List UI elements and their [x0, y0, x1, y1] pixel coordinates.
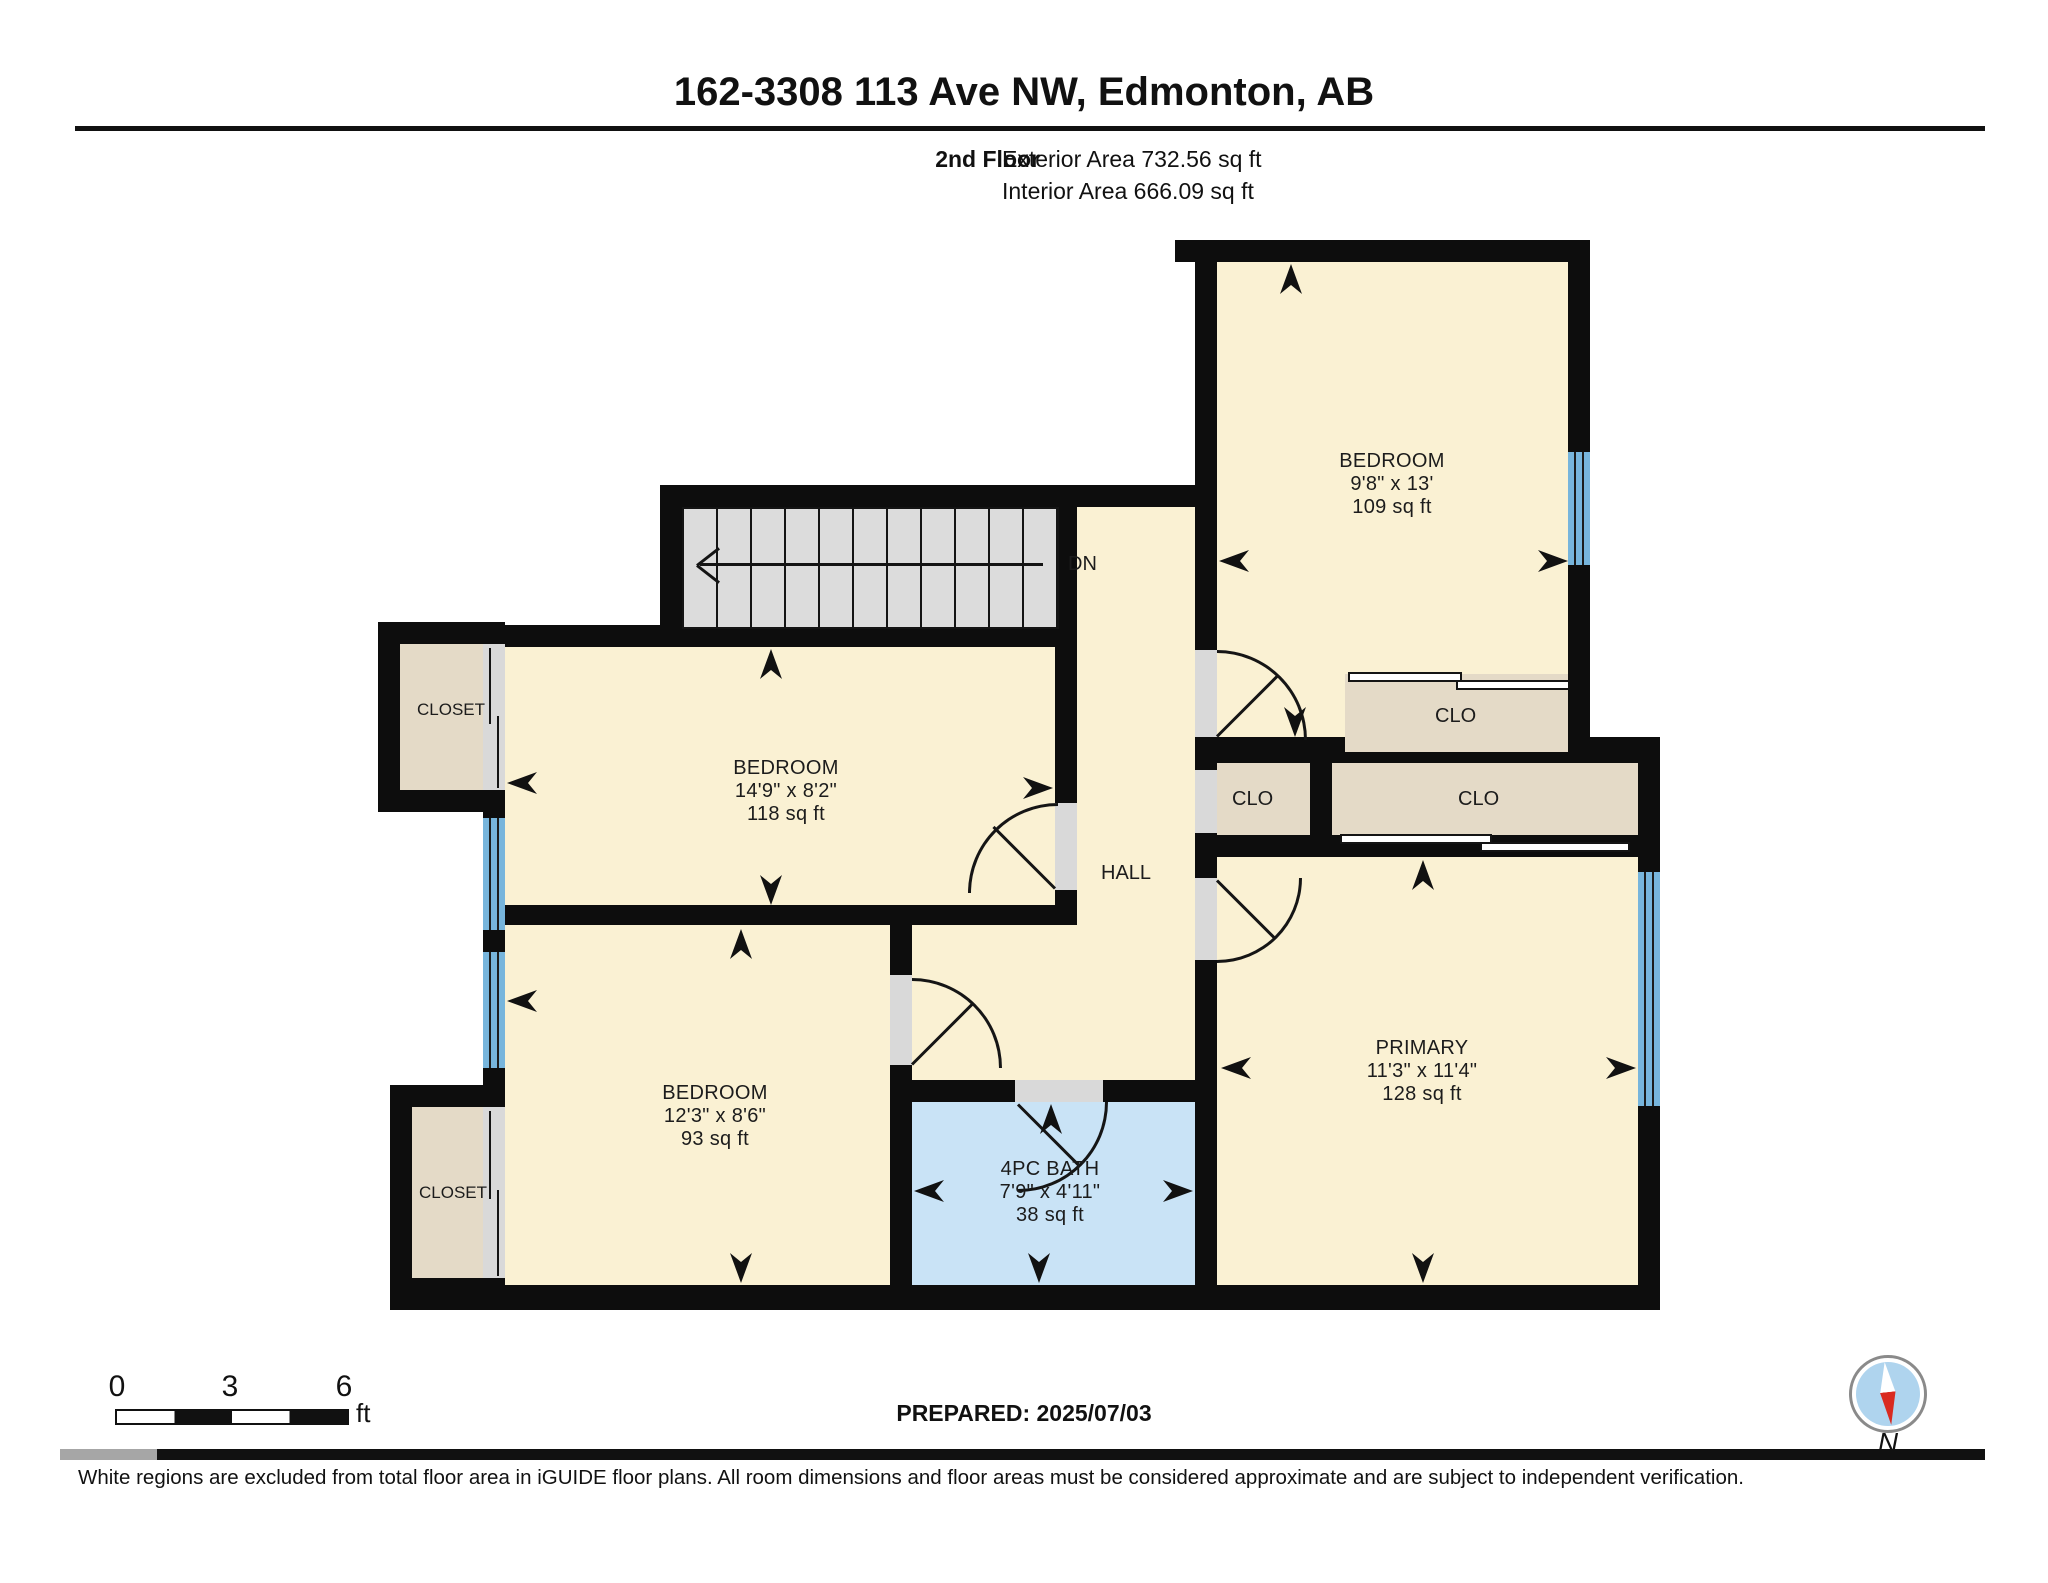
scale-tick-3: 3	[218, 1370, 242, 1404]
wall-segment	[1195, 240, 1217, 485]
room-label-primary: PRIMARY 11'3" x 11'4" 128 sq ft	[1322, 1037, 1522, 1106]
wall-segment	[1310, 763, 1332, 835]
sliding-door-panel	[489, 1111, 491, 1199]
exterior-area-text: Exterior Area 732.56 sq ft	[1002, 146, 1262, 173]
room-dims: 11'3" x 11'4"	[1367, 1060, 1478, 1083]
window	[483, 952, 505, 1068]
room-name: BEDROOM	[662, 1082, 767, 1105]
page-title: 162-3308 113 Ave NW, Edmonton, AB	[0, 70, 2048, 115]
compass-needle-north	[1875, 1391, 1904, 1427]
room-dims: 9'8" x 13'	[1350, 473, 1433, 496]
scale-tick-6: 6	[332, 1370, 356, 1404]
room-dims: 12'3" x 8'6"	[664, 1105, 766, 1128]
window	[483, 818, 505, 930]
compass: N	[1849, 1355, 1927, 1433]
door-opening	[890, 975, 912, 1065]
room-label-clo-hall: CLO	[1232, 788, 1273, 811]
door-opening	[1015, 1080, 1103, 1102]
room-label-closet-left-top: CLOSET	[417, 700, 485, 720]
footer-rule	[157, 1449, 1985, 1460]
bypass-door-panel	[1348, 672, 1462, 682]
door-opening	[1055, 803, 1077, 890]
footer-rule-gray	[60, 1449, 157, 1460]
sliding-door-track	[483, 644, 505, 790]
wall-segment	[390, 1285, 1660, 1310]
room-label-clo-primary: CLO	[1458, 788, 1499, 811]
bypass-door-panel	[1340, 834, 1492, 844]
window	[1568, 452, 1590, 565]
room-label-bedroom-mid: BEDROOM 14'9" x 8'2" 118 sq ft	[686, 757, 886, 826]
room-name: BEDROOM	[1339, 450, 1444, 473]
room-name: BEDROOM	[733, 757, 838, 780]
wall-segment	[1175, 240, 1590, 262]
room-dims: 14'9" x 8'2"	[735, 780, 837, 803]
title-divider-rule	[75, 126, 1985, 131]
room-label-bedroom-bot: BEDROOM 12'3" x 8'6" 93 sq ft	[615, 1082, 815, 1151]
door-opening	[1195, 878, 1217, 960]
scale-tick-0: 0	[105, 1370, 129, 1404]
bypass-door-panel	[1480, 842, 1630, 852]
room-area: 93 sq ft	[681, 1128, 749, 1151]
floor-plan-page: 162-3308 113 Ave NW, Edmonton, AB 2nd Fl…	[0, 0, 2048, 1583]
bypass-door-panel	[1456, 680, 1570, 690]
door-opening	[1195, 650, 1217, 737]
wall-segment	[660, 485, 682, 647]
room-label-closet-left-bot: CLOSET	[419, 1183, 487, 1203]
wall-segment	[660, 485, 1217, 507]
room-area: 109 sq ft	[1352, 496, 1431, 519]
footer-disclaimer: White regions are excluded from total fl…	[78, 1466, 1998, 1490]
room-label-clo-bedroom-top: CLO	[1435, 705, 1476, 728]
window	[1638, 872, 1660, 1106]
compass-needle-south	[1872, 1361, 1901, 1395]
room-label-bath: 4PC BATH 7'9" x 4'11" 38 sq ft	[950, 1158, 1150, 1227]
sliding-door-panel	[497, 1190, 499, 1276]
room-name: 4PC BATH	[1001, 1158, 1100, 1181]
compass-needle	[1845, 1351, 1931, 1437]
room-label-bedroom-top: BEDROOM 9'8" x 13' 109 sq ft	[1292, 450, 1492, 519]
sliding-door-panel	[489, 648, 491, 724]
stairs-dn-label: DN	[1068, 553, 1097, 576]
interior-area-text: Interior Area 666.09 sq ft	[1002, 178, 1254, 205]
room-name: PRIMARY	[1376, 1037, 1469, 1060]
floor-label: 2nd Floor	[780, 146, 1040, 173]
room-dims: 7'9" x 4'11"	[1000, 1181, 1101, 1204]
sliding-door-panel	[497, 716, 499, 788]
room-label-hall: HALL	[1101, 862, 1151, 885]
closet-opening	[1195, 770, 1217, 833]
prepared-date: PREPARED: 2025/07/03	[0, 1400, 2048, 1427]
room-area: 38 sq ft	[1016, 1204, 1084, 1227]
room-area: 128 sq ft	[1382, 1083, 1461, 1106]
room-area: 118 sq ft	[747, 803, 825, 826]
stairs	[682, 507, 1059, 629]
stairs-run-line	[700, 563, 1043, 566]
